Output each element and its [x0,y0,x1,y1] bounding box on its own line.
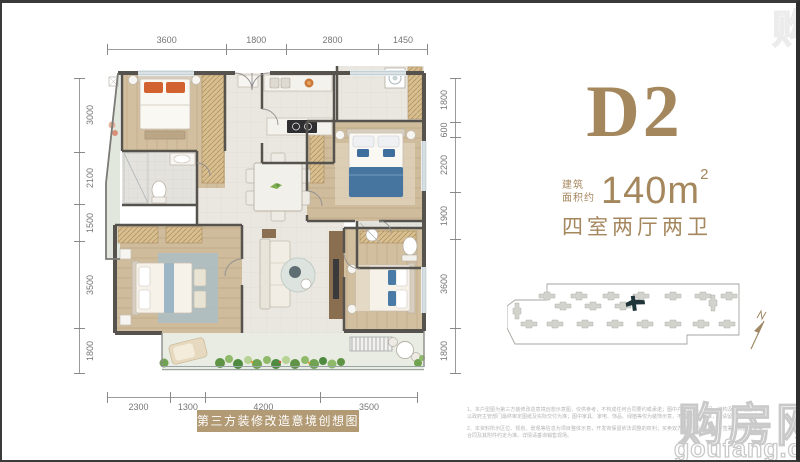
north-arrow-icon [751,311,766,349]
caption-badge: 第三方装修改造意境创想图 [197,410,359,432]
watermark-en-bottom: goufang.com [674,435,800,462]
dim-label-right-2: 2200 [438,143,450,187]
dim-label-bottom-0: 2300 [117,401,161,413]
dim-label-top-1: 1800 [234,34,278,46]
dim-tick [378,44,379,55]
dim-tick [286,44,287,55]
dim-label-right-5: 1800 [438,329,450,373]
dim-tick [417,392,418,403]
dim-tick [450,328,461,329]
floor-plan-drawing [102,63,432,373]
dim-label-left-1: 2100 [84,156,96,200]
dim-tick [320,392,321,403]
dim-tick [107,44,108,55]
dim-tick [450,137,461,138]
dim-label-top-0: 3600 [145,34,189,46]
dim-tick [450,239,461,240]
dim-label-left-2: 1500 [84,201,96,245]
dim-label-left-0: 3000 [84,93,96,137]
area-info: 建筑 面积约 140m2 [562,173,709,209]
dim-label-left-4: 1800 [84,329,96,373]
dim-tick [107,392,108,403]
area-prefix: 建筑 面积约 [562,179,595,205]
dim-tick [427,44,428,55]
dim-line-bottom [107,397,417,398]
unit-name: D2 [542,75,727,149]
dim-label-left-3: 3500 [84,263,96,307]
dim-tick [450,122,461,123]
dim-tick [450,373,461,374]
dim-tick [450,192,461,193]
unit-layout: 四室两厅两卫 [562,211,762,241]
dim-tick [226,44,227,55]
dim-label-right-4: 3600 [438,262,450,306]
bedroom4-bed [348,263,416,314]
dim-tick [74,152,85,153]
dim-label-right-3: 1900 [438,194,450,238]
watermark-cn-top: 购房网 [772,0,800,55]
dim-label-top-2: 2800 [310,34,354,46]
site-plan [507,271,772,363]
dim-tick [74,78,85,79]
area-superscript: 2 [700,166,709,183]
area-value: 140m2 [601,173,709,209]
dim-label-top-3: 1450 [381,34,425,46]
dim-tick [450,78,461,79]
floor-plan-page: 3600180028001450230013004200350030002100… [0,0,800,462]
